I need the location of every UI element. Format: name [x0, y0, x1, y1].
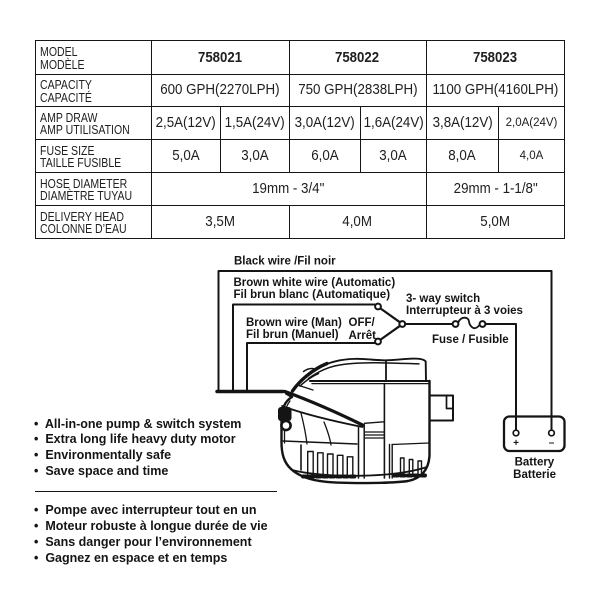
svg-text:Fuse / Fusible: Fuse / Fusible [432, 334, 509, 346]
svg-text:Black wire /Fil noir: Black wire /Fil noir [234, 256, 336, 268]
svg-text:Brown white wire (Automatic): Brown white wire (Automatic) [234, 277, 396, 289]
svg-text:Fil brun (Manuel): Fil brun (Manuel) [246, 329, 339, 341]
svg-text:Batterie: Batterie [513, 469, 556, 481]
svg-text:3- way switch: 3- way switch [406, 293, 480, 305]
svg-text:OFF/: OFF/ [349, 317, 376, 329]
svg-text:Fil brun blanc (Automatique): Fil brun blanc (Automatique) [234, 289, 391, 301]
svg-text:Arrêt: Arrêt [349, 330, 377, 342]
svg-text:Interrupteur à 3 voies: Interrupteur à 3 voies [406, 305, 523, 317]
svg-text:Brown wire (Man): Brown wire (Man) [246, 317, 342, 329]
svg-text:Battery: Battery [515, 456, 555, 468]
svg-text:+: + [513, 438, 519, 449]
svg-text:–: – [549, 437, 555, 448]
